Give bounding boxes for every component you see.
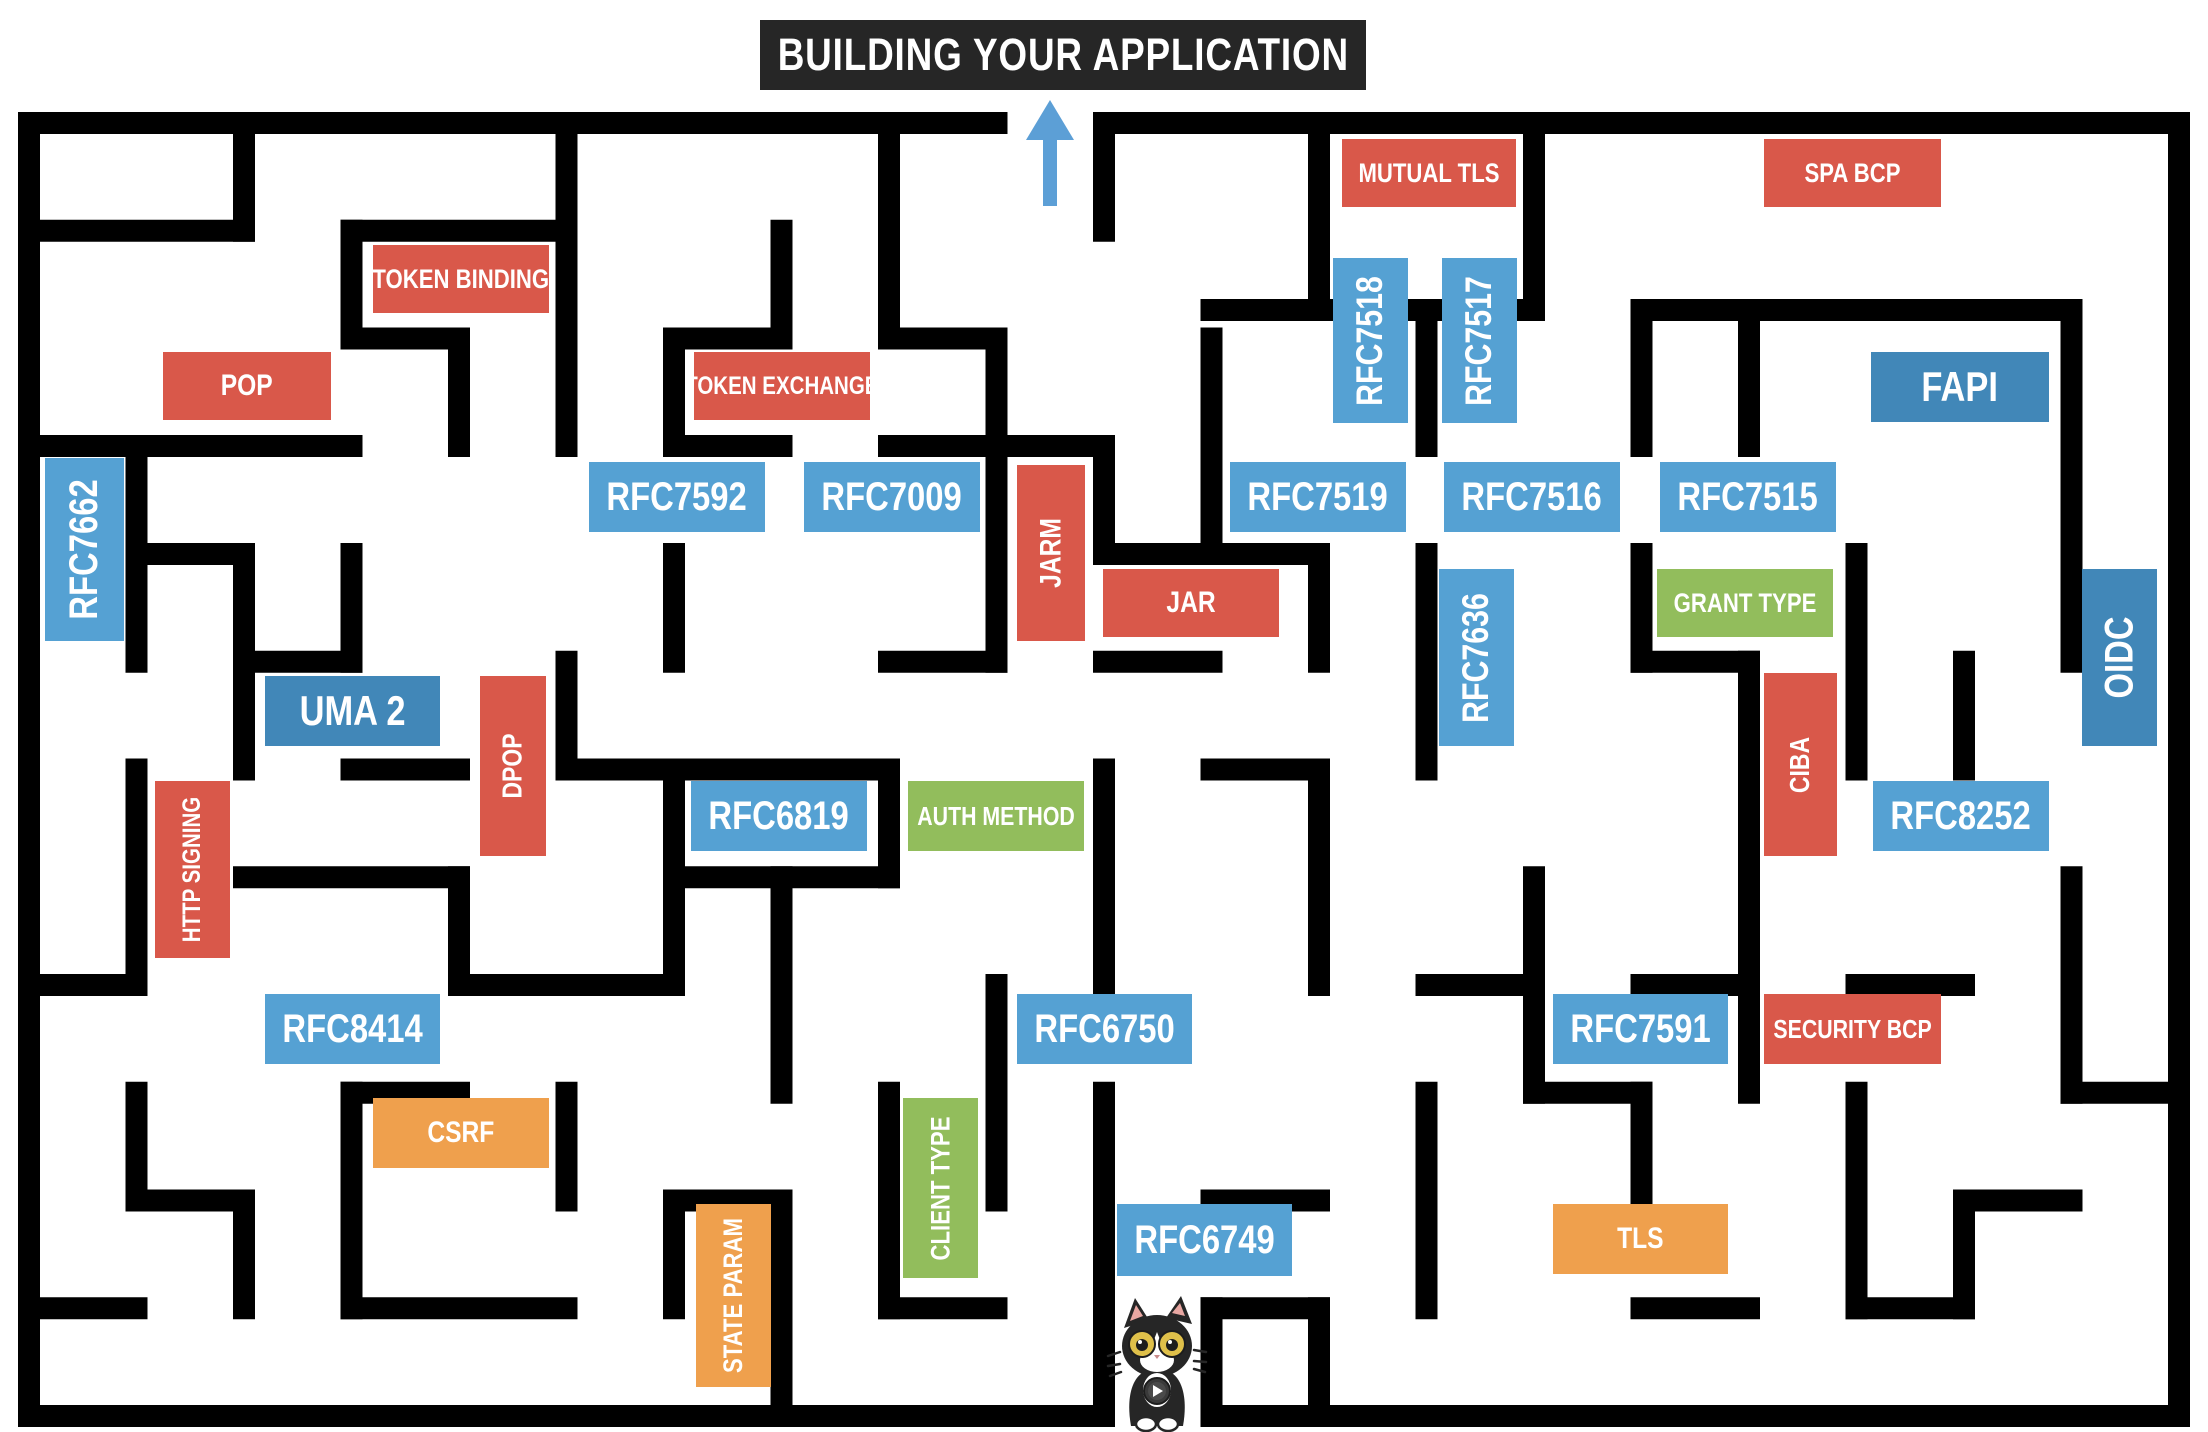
maze-label-token-binding: TOKEN BINDING [373, 245, 549, 313]
maze-label-client-type: CLIENT TYPE [903, 1098, 978, 1278]
page-title-text: BUILDING YOUR APPLICATION [777, 29, 1348, 81]
maze-label-text: POP [221, 369, 273, 403]
maze-label-auth-method: AUTH METHOD [908, 781, 1084, 851]
page-title: BUILDING YOUR APPLICATION [760, 20, 1366, 90]
maze-label-text: MUTUAL TLS [1358, 158, 1499, 189]
exit-arrow [1026, 100, 1074, 211]
maze-label-text: TOKEN BINDING [373, 264, 550, 295]
maze-label-security-bcp: SECURITY BCP [1764, 994, 1941, 1064]
maze-label-rfc7592: RFC7592 [589, 462, 765, 532]
maze-label-rfc7518: RFC7518 [1333, 258, 1408, 423]
maze-label-rfc7636: RFC7636 [1439, 569, 1514, 746]
maze-label-text: RFC6819 [709, 794, 849, 839]
maze-label-text: RFC7516 [1462, 475, 1602, 520]
maze-label-text: JARM [1034, 518, 1068, 588]
maze-label-text: RFC7517 [1459, 276, 1501, 406]
maze-label-text: RFC6750 [1034, 1007, 1174, 1052]
maze-label-text: AUTH METHOD [917, 801, 1075, 832]
maze-label-text: SECURITY BCP [1773, 1014, 1931, 1045]
maze-label-rfc7591: RFC7591 [1553, 994, 1728, 1064]
maze-label-grant-type: GRANT TYPE [1657, 569, 1833, 637]
maze-label-text: GRANT TYPE [1674, 588, 1817, 619]
maze-label-jarm: JARM [1017, 465, 1085, 641]
maze-label-text: RFC8252 [1891, 794, 2031, 839]
maze-label-oidc: OIDC [2082, 569, 2157, 746]
maze-label-text: RFC8414 [282, 1007, 422, 1052]
maze-label-rfc6819: RFC6819 [691, 781, 867, 851]
maze-label-text: RFC7009 [822, 475, 962, 520]
maze-label-text: TOKEN EXCHANGE [685, 372, 878, 401]
maze-label-text: SPA BCP [1805, 158, 1901, 189]
maze-label-rfc7515: RFC7515 [1660, 462, 1836, 532]
cat-mascot [1106, 1294, 1208, 1432]
maze-label-text: RFC6749 [1134, 1218, 1274, 1263]
maze-label-text: CSRF [428, 1116, 495, 1150]
maze-label-state-param: STATE PARAM [696, 1204, 771, 1387]
maze-label-text: JAR [1166, 586, 1215, 620]
maze-label-csrf: CSRF [373, 1098, 549, 1168]
maze-label-text: CLIENT TYPE [925, 1116, 956, 1260]
maze-label-rfc8252: RFC8252 [1873, 781, 2049, 851]
maze-label-ciba: CIBA [1764, 673, 1837, 856]
maze-label-mutual-tls: MUTUAL TLS [1342, 139, 1516, 207]
maze-label-text: OIDC [2097, 617, 2142, 699]
maze-label-rfc7009: RFC7009 [804, 462, 980, 532]
maze-infographic: BUILDING YOUR APPLICATION TOKEN BINDINGP… [0, 0, 2208, 1432]
maze-label-jar: JAR [1103, 569, 1279, 637]
maze-label-text: HTTP SIGNING [178, 797, 207, 942]
up-arrow-icon [1026, 100, 1074, 206]
maze-label-fapi: FAPI [1871, 352, 2049, 422]
maze-label-rfc7662: RFC7662 [45, 458, 124, 641]
maze-label-text: TLS [1617, 1222, 1663, 1256]
maze-label-token-exchange: TOKEN EXCHANGE [694, 352, 870, 420]
maze-label-text: DPOP [497, 733, 529, 798]
maze-label-text: RFC7515 [1678, 475, 1818, 520]
maze-label-text: CIBA [1784, 736, 1816, 792]
maze-label-uma2: UMA 2 [265, 676, 440, 746]
maze-label-text: RFC7662 [62, 479, 107, 619]
maze-label-text: UMA 2 [300, 687, 406, 735]
maze-label-rfc7516: RFC7516 [1444, 462, 1620, 532]
maze-label-text: STATE PARAM [718, 1218, 749, 1373]
maze-label-text: RFC7636 [1456, 593, 1498, 723]
maze-label-http-signing: HTTP SIGNING [155, 781, 230, 958]
up-arrow-shape [1026, 100, 1074, 206]
maze-label-rfc6749: RFC6749 [1117, 1204, 1292, 1276]
maze-label-text: RFC7592 [607, 475, 747, 520]
maze-label-rfc8414: RFC8414 [265, 994, 440, 1064]
maze-label-text: FAPI [1922, 363, 1999, 411]
maze-label-spa-bcp: SPA BCP [1764, 139, 1941, 207]
maze-walls [29, 123, 2179, 1416]
cat-icon [1106, 1294, 1208, 1432]
maze-label-text: RFC7519 [1248, 475, 1388, 520]
maze-label-text: RFC7518 [1350, 276, 1392, 406]
maze-label-tls: TLS [1553, 1204, 1728, 1274]
maze-label-rfc7519: RFC7519 [1230, 462, 1406, 532]
maze-label-rfc7517: RFC7517 [1442, 258, 1517, 423]
maze-label-rfc6750: RFC6750 [1017, 994, 1192, 1064]
maze-label-pop: POP [163, 352, 331, 420]
maze-label-dpop: DPOP [480, 676, 546, 856]
maze-label-text: RFC7591 [1570, 1007, 1710, 1052]
